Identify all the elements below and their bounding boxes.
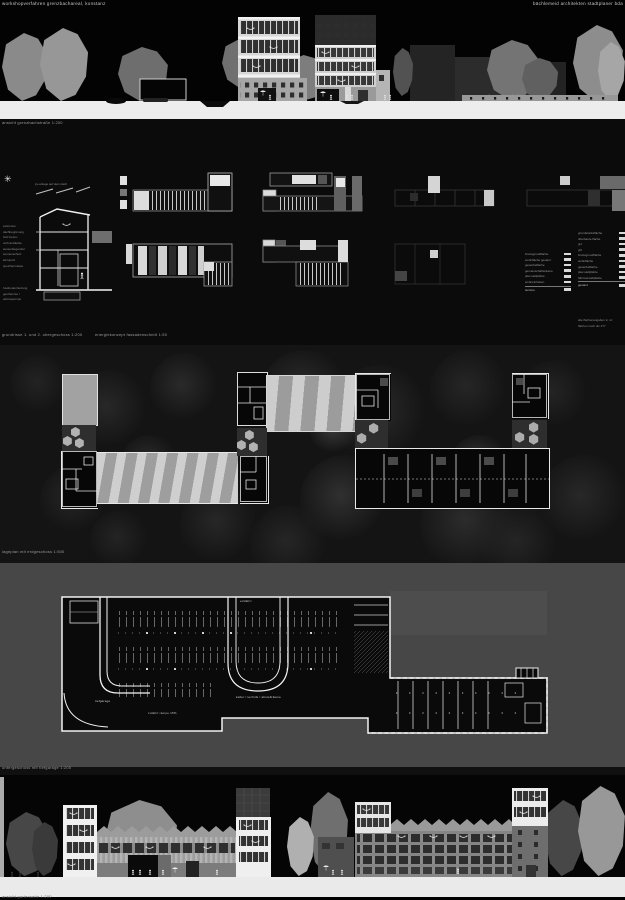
plans-note: alle flächenangaben in m² [578, 318, 612, 324]
legend-value-bar [564, 253, 571, 256]
legend-row: bruttogrundfläche [525, 252, 571, 256]
facade-label: extensive dachbegrünung [3, 224, 35, 235]
legend-value-bar [564, 288, 571, 291]
floor-plan-cluster [263, 173, 362, 211]
tower-elevation [236, 788, 271, 877]
facade-label: holz-beton-verbunddecke [3, 235, 35, 246]
legend-row: gewerbefläche [578, 265, 625, 269]
ramp-label: zufahrt rampe 15% [148, 712, 177, 715]
sun-icon: ✳ [4, 175, 12, 184]
legend-row: pkw-stellplätze [525, 274, 571, 278]
architect-name: bächlemeid architekten stadtplaner bda [533, 1, 623, 6]
caption-garage: untergeschoss mit tiefgarage 1:200 [2, 766, 71, 770]
hex-terrace [237, 428, 267, 456]
parking-stalls [118, 683, 216, 697]
shed-outline [140, 79, 186, 100]
facade-labels: extensive dachbegrünung holz-beton-verbu… [3, 224, 35, 270]
ground-strip [0, 101, 625, 119]
legend-row: bruttogrundfläche [578, 253, 625, 257]
legend-value-bar [619, 243, 625, 246]
ground-floor-plan [240, 456, 269, 504]
legend-value-bar [619, 260, 625, 263]
caption-bottom-elevation: ansicht gartenseite 1:200 [2, 895, 52, 899]
legend-value-bar [564, 269, 571, 272]
legend-value-bar [564, 281, 571, 284]
tower-elevation [63, 805, 97, 877]
tree-icon [545, 800, 583, 876]
legend-total-row: gesamt [578, 281, 625, 287]
legend-row: wohnfläche [578, 259, 625, 263]
legend-value-bar [619, 254, 625, 257]
legend-row: wohnfläche gesamt [525, 258, 571, 262]
legend-row: überbaute fläche [578, 237, 625, 241]
caption-site-plan: lageplan mit erdgeschoss 1:500 [2, 550, 64, 554]
background-building [410, 45, 455, 101]
floor-plans-band [0, 119, 625, 345]
legend-value-bar [619, 237, 625, 240]
floor-plan-cluster-faint [395, 244, 465, 284]
legend-row: gemeinschaftsräume [525, 269, 571, 273]
legend-value-bar [564, 275, 571, 278]
caption-top-elevation: ansicht grenzbachstraße 1:200 [2, 121, 63, 125]
floor-plan-cluster [126, 244, 232, 286]
ground-strip [0, 877, 625, 897]
bottom-elevation-band [0, 767, 625, 900]
cellar-label: keller / technik / abstellräume [236, 696, 281, 699]
facade-section-drawing [36, 187, 112, 300]
facade-label: geothermie / wärmepumpe [3, 292, 35, 303]
hex-terrace [62, 425, 96, 451]
garage-plan-svg [0, 563, 625, 767]
tower-elevation [512, 788, 548, 877]
roof-note: pv-anlage auf dem dach [35, 182, 67, 188]
garage-band [0, 563, 625, 767]
plans-note: flächen nach din 277 [578, 324, 612, 330]
tree-icon [287, 817, 314, 876]
hex-terrace [355, 420, 388, 449]
tree-icon [578, 786, 625, 876]
legend-row: fahrrad-stellplätze [578, 276, 625, 280]
legend-value-bar [619, 232, 625, 235]
facade-label: lehmputz speichermasse [3, 258, 35, 269]
area-legend-left: bruttogrundfläche wohnfläche gesamt gewe… [525, 252, 571, 292]
long-building-elevation [355, 802, 515, 877]
ground-floor-plan-long [355, 448, 550, 509]
legend-value-bar [619, 265, 625, 268]
legend-row: wohneinheiten [525, 280, 571, 284]
tree-canopy [10, 355, 70, 415]
presentation-board: workshopverfahren grenzbachareal, konsta… [0, 0, 625, 900]
floor-plan-cluster [263, 240, 348, 286]
garage-entry-label: einfahrt [240, 600, 252, 603]
sawtooth-building [97, 826, 237, 877]
hex-terrace [512, 420, 547, 449]
tree-canopy [90, 510, 150, 563]
legend-row: pkw-stellplätze [578, 270, 625, 274]
upper-floor-plan [512, 373, 549, 419]
floor-plan-cluster-faint [395, 176, 494, 206]
floor-plan-cluster [120, 173, 232, 211]
tree-canopy [430, 350, 510, 430]
top-elevation-svg [0, 0, 625, 119]
tree-canopy [150, 353, 220, 423]
legend-value-bar [564, 258, 571, 261]
parking-stalls [118, 647, 340, 663]
floor-plans-svg [0, 119, 625, 345]
ground-floor-plan [237, 372, 268, 426]
garage-label: tiefgarage [95, 700, 110, 703]
facade-label: aussenliegender sonnenschutz [3, 247, 35, 258]
striped-roof-building [266, 375, 359, 432]
top-elevation-band [0, 0, 625, 119]
background-building [318, 837, 354, 877]
parking-stalls [118, 611, 340, 627]
ground-floor-plan [61, 451, 98, 509]
caption-energy: energiekonzept fassadenschnitt 1:50 [95, 333, 167, 337]
legend-value-bar [564, 264, 571, 267]
glazed-building-left [238, 17, 307, 101]
legend-row: gewerbefläche [525, 263, 571, 267]
area-legend-right: grundstücksfläche überbaute fläche grz g… [578, 231, 625, 287]
facade-labels-2: fussbodenheizung geothermie / wärmepumpe [3, 286, 35, 303]
bottom-elevation-svg [0, 767, 625, 900]
flat-roof-building [62, 374, 98, 426]
legend-value-bar [619, 276, 625, 279]
board-title: workshopverfahren grenzbachareal, konsta… [2, 1, 106, 6]
legend-value-bar [619, 284, 625, 287]
upper-floor-plan [355, 373, 391, 421]
legend-row: grz [578, 242, 625, 246]
retaining-wall [462, 95, 618, 102]
legend-total-row: summe [525, 286, 571, 292]
caption-plans: grundrisse 1. und 2. obergeschoss 1:200 [2, 333, 82, 337]
legend-row: gfz [578, 248, 625, 252]
site-plan-band [0, 345, 625, 563]
floor-plan-cluster-faint [527, 176, 625, 211]
legend-value-bar [619, 248, 625, 251]
striped-roof-building [97, 452, 238, 504]
legend-row: grundstücksfläche [578, 231, 625, 235]
plans-notes: alle flächenangaben in m² flächen nach d… [578, 318, 612, 329]
legend-value-bar [619, 271, 625, 274]
